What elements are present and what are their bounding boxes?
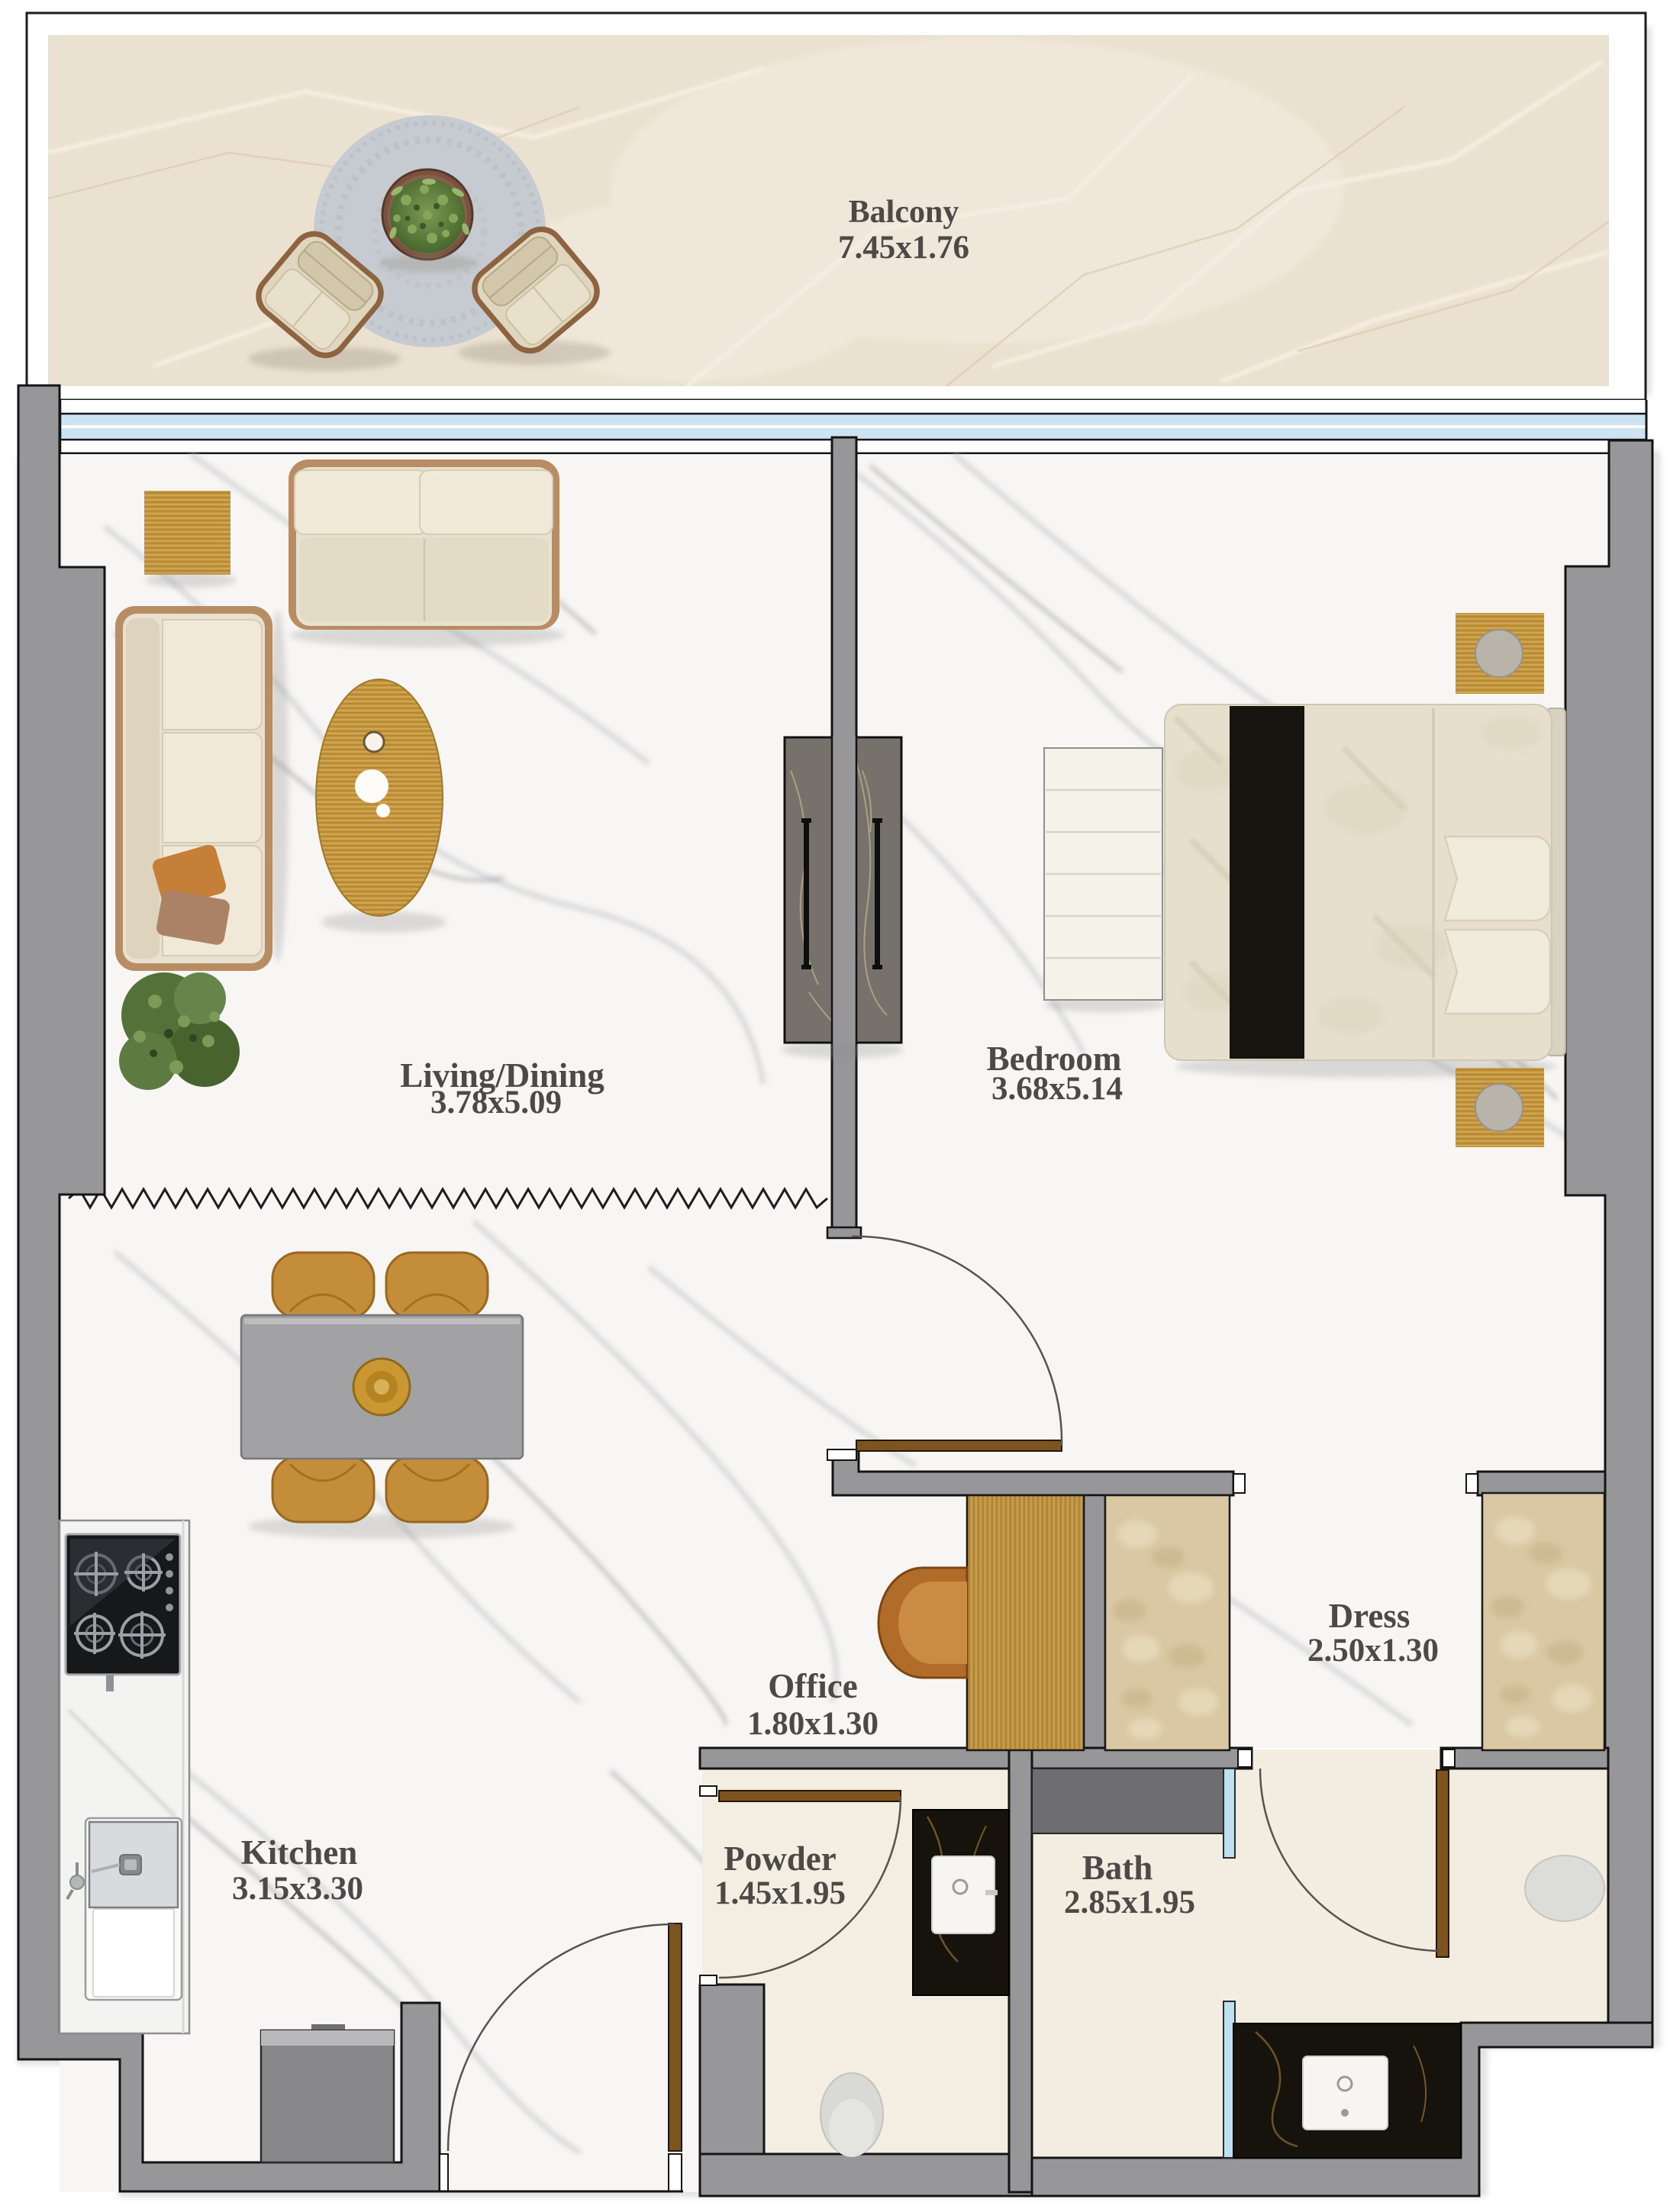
svg-text:2.50x1.30: 2.50x1.30: [1307, 1633, 1439, 1669]
svg-text:Powder: Powder: [724, 1840, 836, 1878]
svg-text:Bath: Bath: [1082, 1849, 1153, 1887]
svg-text:3.15x3.30: 3.15x3.30: [232, 1871, 363, 1907]
svg-text:7.45x1.76: 7.45x1.76: [838, 230, 969, 266]
svg-text:2.85x1.95: 2.85x1.95: [1064, 1885, 1195, 1920]
svg-text:Dress: Dress: [1329, 1597, 1410, 1635]
svg-text:1.45x1.95: 1.45x1.95: [714, 1875, 846, 1911]
svg-text:1.80x1.30: 1.80x1.30: [747, 1706, 879, 1742]
svg-text:3.78x5.09: 3.78x5.09: [430, 1085, 562, 1121]
svg-text:3.68x5.14: 3.68x5.14: [991, 1071, 1123, 1107]
svg-text:Kitchen: Kitchen: [241, 1833, 358, 1872]
svg-text:Balcony: Balcony: [849, 195, 959, 230]
svg-text:Office: Office: [768, 1667, 857, 1705]
